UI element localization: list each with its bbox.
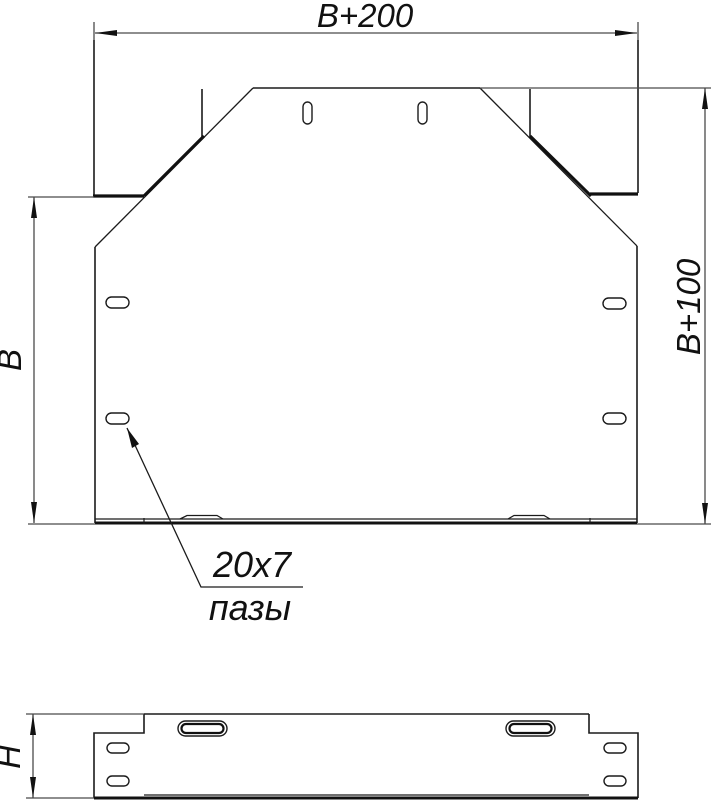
slot-size-label: 20x7 — [212, 544, 293, 585]
body-slot-right-lower — [603, 413, 626, 424]
body-slot-left-upper — [106, 297, 129, 308]
side-slot-right-lower — [604, 776, 626, 786]
side-big-slot-left-inner — [182, 724, 224, 733]
dim-b100-label: B+100 — [670, 258, 707, 355]
dim-b100-arrow-top — [702, 88, 708, 109]
dim-b200-label: B+200 — [317, 0, 414, 34]
top-view — [93, 40, 638, 524]
side-slot-left-lower — [107, 776, 129, 786]
dim-b-arrow-top — [31, 197, 37, 218]
dimensions — [26, 22, 711, 798]
dim-b100-arrow-bottom — [702, 503, 708, 524]
dim-b-arrow-bottom — [31, 502, 37, 523]
slot-name-label: пазы — [209, 587, 291, 628]
dim-b200-arrow-right — [615, 30, 637, 36]
left-corner-fold — [144, 136, 204, 196]
side-slot-left-upper — [107, 743, 129, 753]
labels: B+200 B+100 B H 20x7 пазы — [0, 0, 707, 769]
tab-slot-left — [303, 102, 312, 124]
dim-b-label: B — [0, 349, 28, 371]
dim-h-label: H — [0, 745, 27, 769]
side-big-slot-right-inner — [510, 724, 552, 733]
right-corner-fold — [530, 136, 591, 196]
dim-b200-arrow-left — [95, 30, 117, 36]
side-view — [94, 714, 638, 798]
body-slot-right-upper — [603, 298, 626, 309]
side-slot-right-upper — [604, 743, 626, 753]
body-slot-left-lower — [106, 413, 129, 424]
technical-drawing: B+200 B+100 B H 20x7 пазы — [0, 0, 717, 802]
dim-h-arrow-bottom — [30, 777, 36, 798]
right-chamfer-edge — [480, 88, 637, 246]
drawing-sheet: B+200 B+100 B H 20x7 пазы — [0, 0, 717, 802]
dim-h-arrow-top — [30, 714, 36, 735]
tab-slot-right — [418, 102, 427, 124]
leader-arrowhead — [127, 428, 139, 448]
